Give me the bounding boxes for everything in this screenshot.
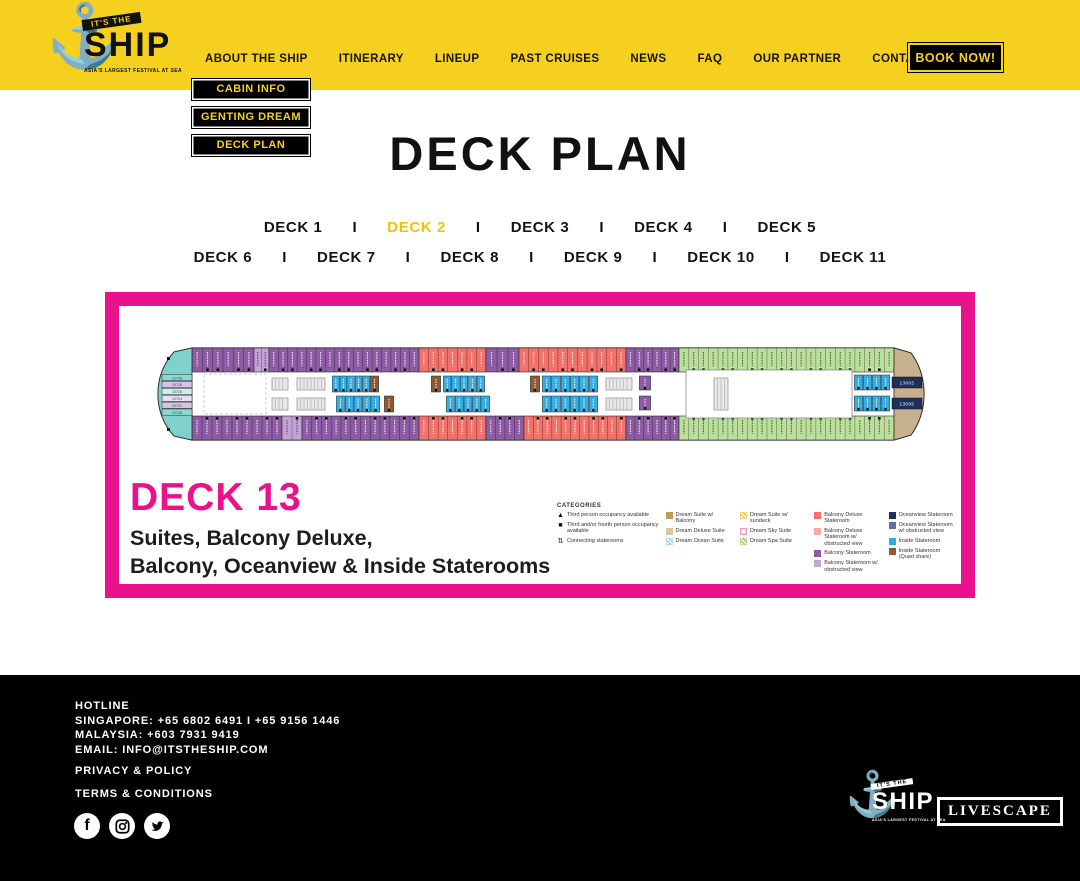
- svg-text:13005: 13005: [900, 402, 915, 407]
- deck-tab-deck-10[interactable]: DECK 10: [687, 249, 755, 266]
- hotline-block: HOTLINE SINGAPORE: +65 6802 6491 I +65 9…: [75, 699, 340, 757]
- legend-label: Connecting staterooms: [567, 538, 624, 545]
- page-title: DECK PLAN: [0, 126, 1080, 181]
- twitter-link[interactable]: [144, 813, 170, 839]
- legend-swatch: [814, 512, 821, 519]
- hotline-singapore: SINGAPORE: +65 6802 6491 I +65 9156 1446: [75, 714, 340, 729]
- deck-tab-deck-9[interactable]: DECK 9: [564, 249, 623, 266]
- legend-swatch: [889, 548, 896, 555]
- legend-heading: CATEGORIES: [557, 503, 957, 509]
- legend-label: Dream Suite w/ sundeck: [750, 512, 808, 525]
- hotline-label: HOTLINE: [75, 699, 340, 714]
- legend-item: Inside Stateroom (Quad share): [889, 548, 957, 561]
- legend-item: Dream Spa Suite: [740, 538, 808, 545]
- deck-tab-deck-4[interactable]: DECK 4: [634, 219, 693, 236]
- nav-item-faq[interactable]: FAQ: [698, 53, 723, 65]
- legend-label: Dream Deluxe Suite: [676, 528, 725, 535]
- legend-swatch: [740, 512, 747, 519]
- deck-nav: DECK 1IDECK 2IDECK 3IDECK 4IDECK 5 DECK …: [0, 212, 1080, 272]
- dropdown-item-genting-dream[interactable]: GENTING DREAM: [191, 106, 311, 129]
- legend-label: Dream Spa Suite: [750, 538, 792, 545]
- legend-item: Balcony Deluxe Stateroom: [814, 512, 882, 525]
- instagram-icon: [115, 819, 130, 834]
- deck-tab-deck-3[interactable]: DECK 3: [511, 219, 570, 236]
- deck-plan-graphic: 1573015728157261572415722157201300313005: [154, 338, 926, 450]
- dropdown-item-deck-plan[interactable]: DECK PLAN: [191, 134, 311, 157]
- svg-text:15730: 15730: [172, 376, 182, 380]
- legend-label: Dream Sky Suite: [750, 528, 791, 535]
- legend-label: Oceanview Stateroom w/ obstructed view: [899, 522, 957, 535]
- deck-tab-deck-5[interactable]: DECK 5: [758, 219, 817, 236]
- deck-nav-row-1: DECK 1IDECK 2IDECK 3IDECK 4IDECK 5: [0, 212, 1080, 242]
- legend-swatch: [666, 512, 673, 519]
- legend-label: Balcony Stateroom w/ obstructed view: [824, 560, 882, 573]
- legend-symbol: ■: [557, 522, 564, 529]
- deck-separator: I: [406, 249, 411, 266]
- legend-item: ■Third and/or fourth person occupancy av…: [557, 522, 660, 535]
- dropdown-item-cabin-info[interactable]: CABIN INFO: [191, 78, 311, 101]
- deck-separator: I: [599, 219, 604, 236]
- legend-item: Balcony Stateroom: [814, 550, 882, 557]
- deck-separator: I: [723, 219, 728, 236]
- legend-label: Oceanview Stateroom: [899, 512, 953, 519]
- book-now-label: BOOK NOW!: [915, 51, 995, 65]
- deck-tab-deck-2[interactable]: DECK 2: [387, 219, 446, 236]
- livescape-logo: LIVESCAPE: [937, 797, 1063, 826]
- footer-ship-logo: ⚓ IT'S THE SHIP ASIA'S LARGEST FESTIVAL …: [845, 765, 945, 855]
- svg-text:13003: 13003: [900, 381, 915, 386]
- deck-separator: I: [282, 249, 287, 266]
- legend-item: Dream Deluxe Suite: [666, 528, 734, 535]
- legend-item: Balcony Stateroom w/ obstructed view: [814, 560, 882, 573]
- deck-13-title: DECK 13: [130, 476, 302, 520]
- legend-label: Inside Stateroom (Quad share): [899, 548, 957, 561]
- svg-text:15726: 15726: [172, 390, 182, 394]
- deck-tab-deck-1[interactable]: DECK 1: [264, 219, 323, 236]
- legend-item: Dream Suite w/ Balcony: [666, 512, 734, 525]
- logo-tagline: ASIA'S LARGEST FESTIVAL AT SEA: [84, 68, 182, 74]
- deck-13-subtitle-line1: Suites, Balcony Deluxe,: [130, 524, 550, 552]
- legend-label: Balcony Deluxe Stateroom: [824, 512, 882, 525]
- facebook-link[interactable]: f: [74, 813, 100, 839]
- site-logo[interactable]: ⚓ IT'S THE SHIP ASIA'S LARGEST FESTIVAL …: [46, 2, 186, 88]
- legend-swatch: [740, 538, 747, 545]
- legend-item: Dream Suite w/ sundeck: [740, 512, 808, 525]
- logo-name: SHIP: [84, 26, 171, 65]
- legend-symbol: ⇅: [557, 538, 564, 545]
- legend-column: Oceanview StateroomOceanview Stateroom w…: [889, 512, 957, 564]
- svg-text:15722: 15722: [172, 404, 182, 408]
- site-header: ⚓ IT'S THE SHIP ASIA'S LARGEST FESTIVAL …: [0, 0, 1080, 90]
- deck-plan-panel: 1573015728157261572415722157201300313005…: [105, 292, 975, 598]
- nav-item-lineup[interactable]: LINEUP: [435, 53, 480, 65]
- nav-item-our-partner[interactable]: OUR PARTNER: [753, 53, 841, 65]
- legend-item: Oceanview Stateroom w/ obstructed view: [889, 522, 957, 535]
- deck-tab-deck-11[interactable]: DECK 11: [820, 249, 887, 266]
- site-footer: HOTLINE SINGAPORE: +65 6802 6491 I +65 9…: [0, 675, 1080, 881]
- main-nav: ABOUT THE SHIPITINERARYLINEUPPAST CRUISE…: [205, 53, 930, 65]
- deck-tab-deck-7[interactable]: DECK 7: [317, 249, 376, 266]
- svg-text:15728: 15728: [172, 383, 182, 387]
- legend-label: Balcony Stateroom: [824, 550, 870, 557]
- deck-separator: I: [529, 249, 534, 266]
- nav-item-news[interactable]: NEWS: [630, 53, 666, 65]
- svg-text:15720: 15720: [172, 411, 182, 415]
- legend-label: Dream Suite w/ Balcony: [676, 512, 734, 525]
- legend-label: Inside Stateroom: [899, 538, 941, 545]
- deck-legend: CATEGORIES ▲Third person occupancy avail…: [557, 503, 957, 577]
- instagram-link[interactable]: [109, 813, 135, 839]
- hotline-email: EMAIL: INFO@ITSTHESHIP.COM: [75, 743, 340, 758]
- deck-nav-row-2: DECK 6IDECK 7IDECK 8IDECK 9IDECK 10IDECK…: [0, 242, 1080, 272]
- legend-column: Dream Suite w/ sundeckDream Sky SuiteDre…: [740, 512, 808, 548]
- legend-item: Dream Ocean Suite: [666, 538, 734, 545]
- about-dropdown-menu: CABIN INFOGENTING DREAMDECK PLAN: [191, 78, 311, 162]
- deck-13-subtitle-line2: Balcony, Oceanview & Inside Staterooms: [130, 552, 550, 580]
- legend-label: Balcony Deluxe Stateroom w/ obstructed v…: [824, 528, 882, 548]
- legend-item: ⇅Connecting staterooms: [557, 538, 660, 545]
- privacy-policy-link[interactable]: PRIVACY & POLICY: [75, 765, 192, 777]
- legend-symbol: ▲: [557, 512, 564, 519]
- footer-logo-tagline: ASIA'S LARGEST FESTIVAL AT SEA: [872, 818, 946, 822]
- nav-item-past-cruises[interactable]: PAST CRUISES: [510, 53, 599, 65]
- deck-13-subtitle: Suites, Balcony Deluxe, Balcony, Oceanvi…: [130, 524, 550, 580]
- legend-label: Third person occupancy available: [567, 512, 649, 519]
- deck-separator: I: [353, 219, 358, 236]
- legend-label: Dream Ocean Suite: [676, 538, 724, 545]
- legend-swatch: [740, 528, 747, 535]
- deck-tab-deck-6[interactable]: DECK 6: [194, 249, 253, 266]
- legend-swatch: [889, 522, 896, 529]
- legend-column: Dream Suite w/ BalconyDream Deluxe Suite…: [666, 512, 734, 548]
- footer-logo-name: SHIP: [872, 788, 934, 816]
- twitter-icon: [150, 819, 165, 834]
- deck-separator: I: [652, 249, 657, 266]
- nav-item-about-the-ship[interactable]: ABOUT THE SHIP: [205, 53, 308, 65]
- deck-plan-page: ⚓ IT'S THE SHIP ASIA'S LARGEST FESTIVAL …: [0, 0, 1080, 881]
- legend-swatch: [666, 538, 673, 545]
- deck-tab-deck-8[interactable]: DECK 8: [440, 249, 499, 266]
- legend-swatch: [814, 560, 821, 567]
- legend-swatch: [814, 550, 821, 557]
- legend-columns: ▲Third person occupancy available■Third …: [557, 512, 957, 577]
- terms-conditions-link[interactable]: TERMS & CONDITIONS: [75, 788, 213, 800]
- nav-item-itinerary[interactable]: ITINERARY: [339, 53, 404, 65]
- legend-swatch: [666, 528, 673, 535]
- legend-item: Dream Sky Suite: [740, 528, 808, 535]
- legend-label: Third and/or fourth person occupancy ava…: [567, 522, 660, 535]
- legend-swatch: [889, 538, 896, 545]
- facebook-icon: f: [84, 818, 89, 834]
- legend-item: ▲Third person occupancy available: [557, 512, 660, 519]
- hotline-malaysia: MALAYSIA: +603 7931 9419: [75, 728, 340, 743]
- legend-item: Oceanview Stateroom: [889, 512, 957, 519]
- social-links: f: [74, 813, 170, 839]
- legend-item: Inside Stateroom: [889, 538, 957, 545]
- deck-separator: I: [476, 219, 481, 236]
- deck-separator: I: [785, 249, 790, 266]
- book-now-button[interactable]: BOOK NOW!: [907, 42, 1004, 73]
- svg-text:15724: 15724: [172, 397, 182, 401]
- legend-swatch: [889, 512, 896, 519]
- legend-item: Balcony Deluxe Stateroom w/ obstructed v…: [814, 528, 882, 548]
- legend-column: Balcony Deluxe StateroomBalcony Deluxe S…: [814, 512, 882, 577]
- legend-swatch: [814, 528, 821, 535]
- legend-column: ▲Third person occupancy available■Third …: [557, 512, 660, 548]
